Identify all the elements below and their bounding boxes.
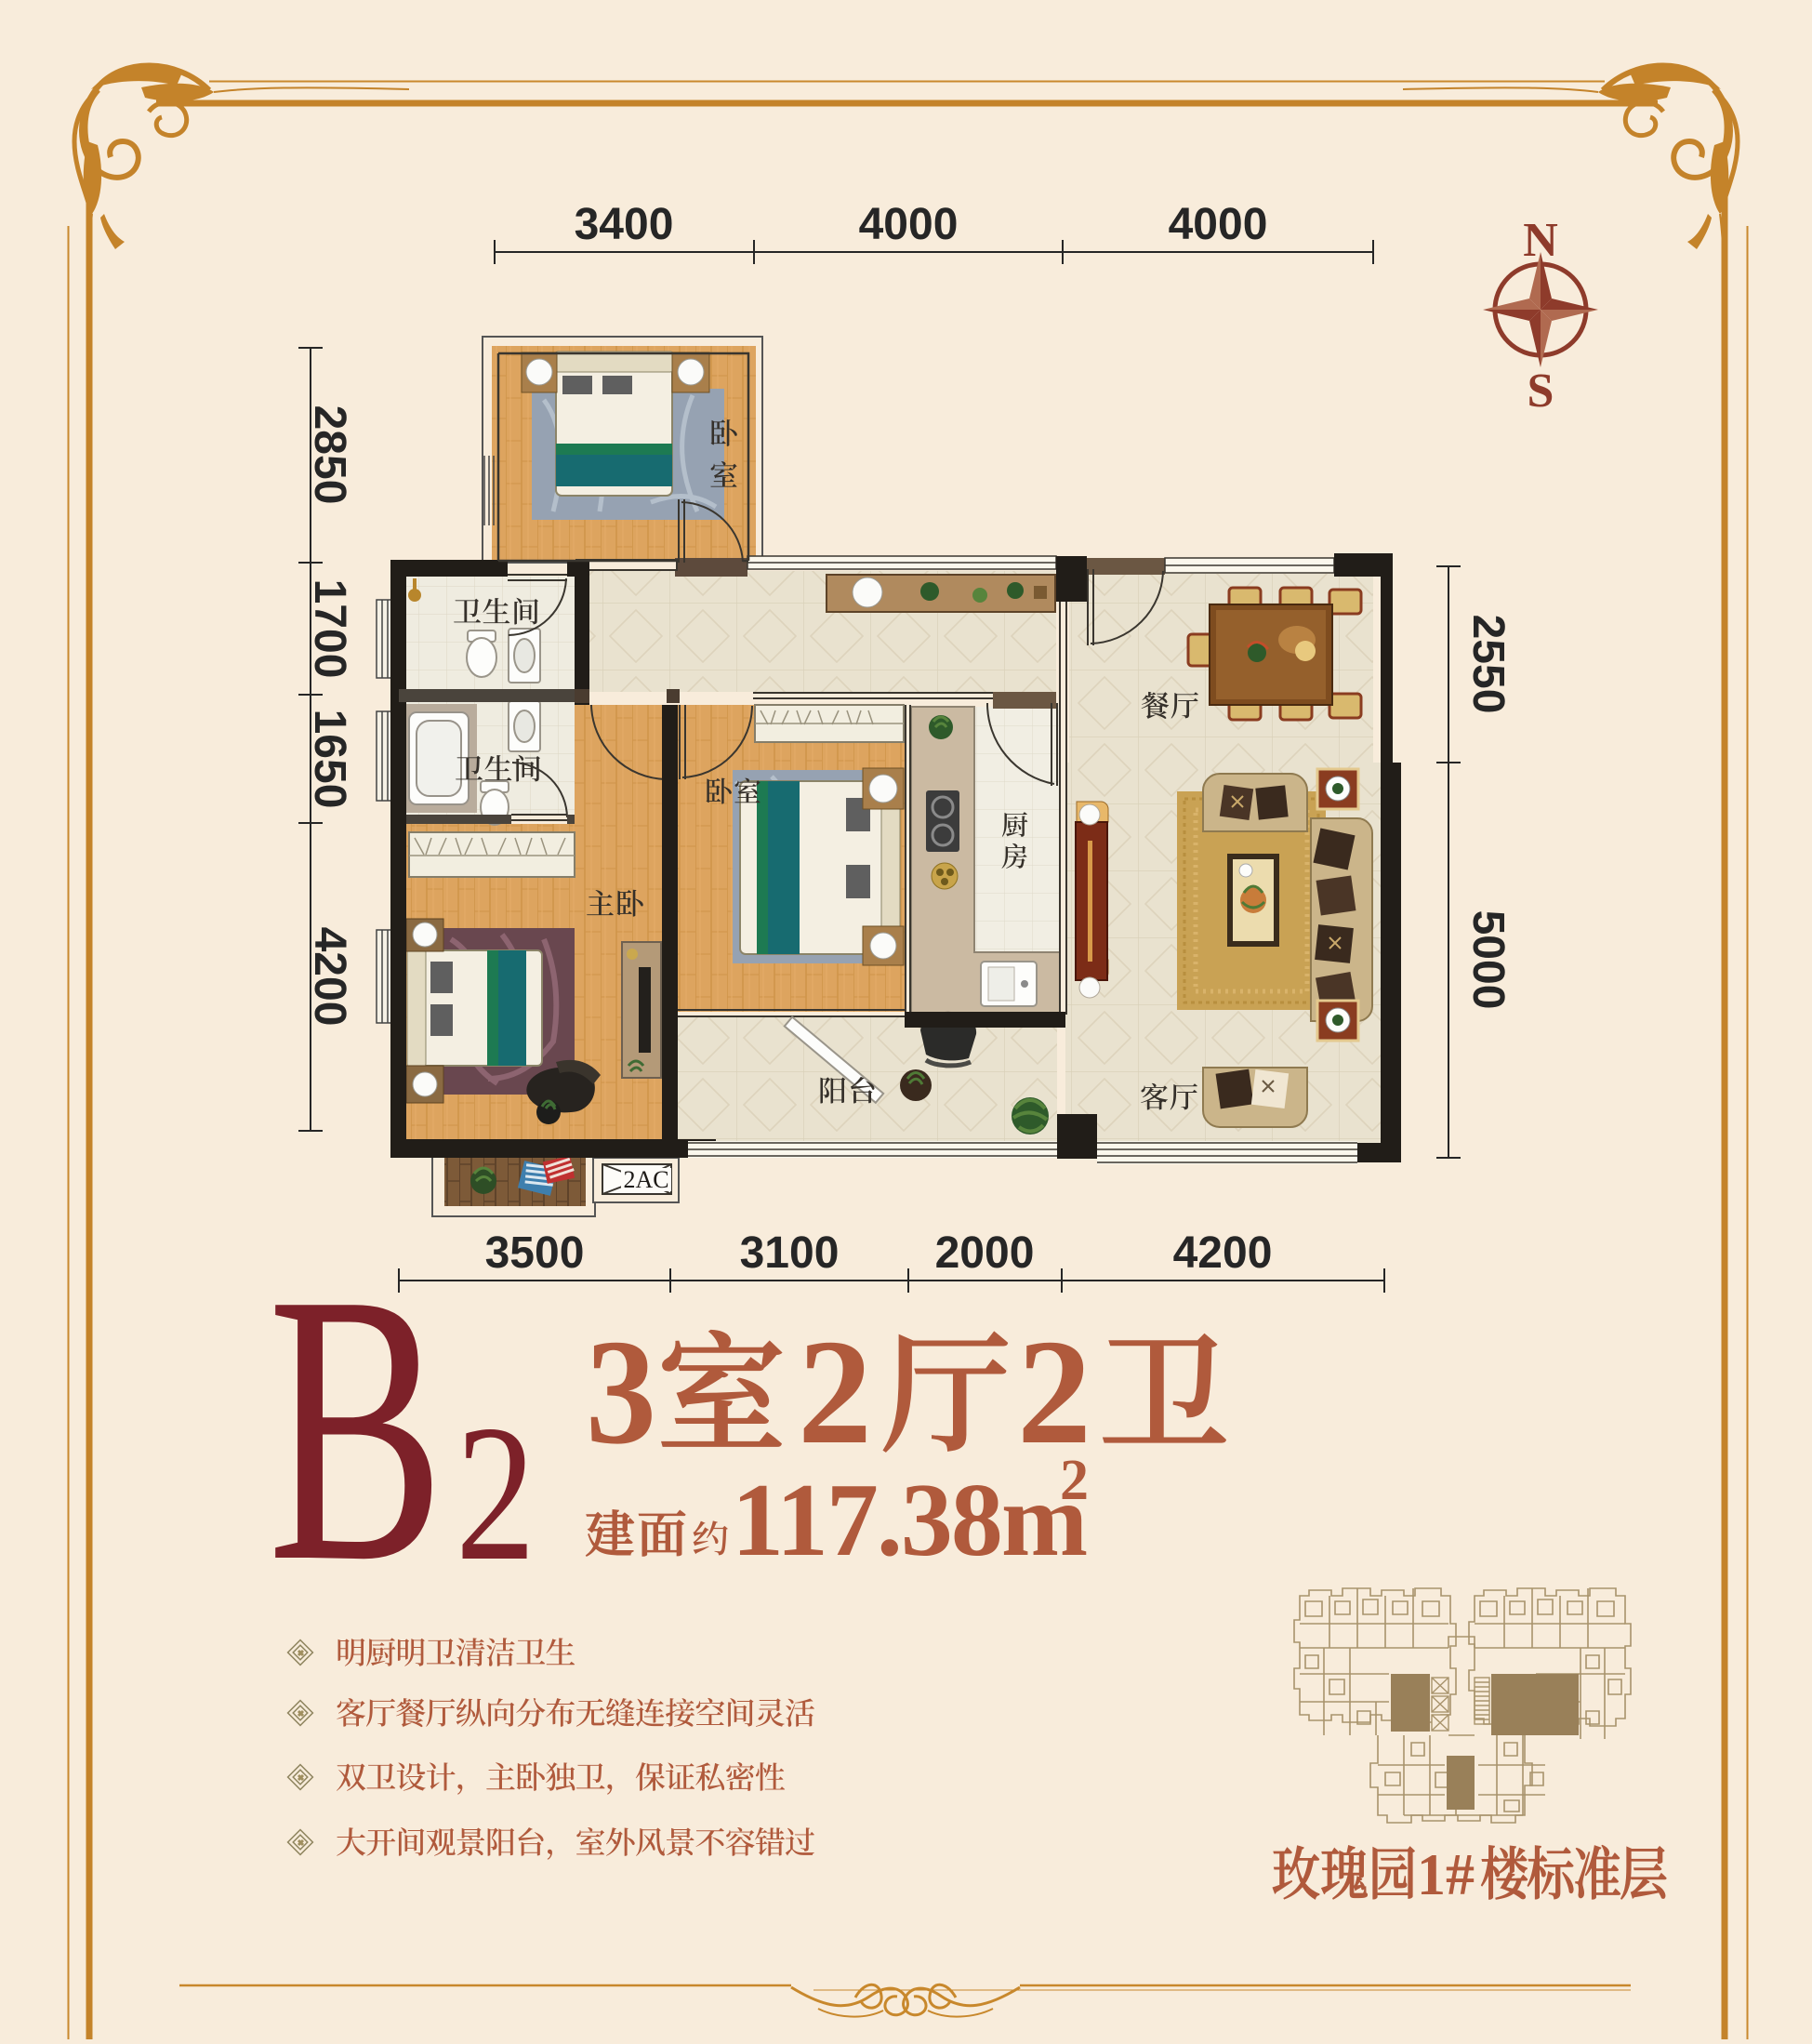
svg-text:2: 2 [1060, 1449, 1089, 1512]
svg-text:2850: 2850 [305, 405, 354, 505]
svg-text:B: B [268, 1214, 444, 1641]
svg-text:2AC: 2AC [623, 1166, 668, 1193]
svg-text:4000: 4000 [859, 200, 959, 249]
svg-text:2: 2 [798, 1309, 872, 1476]
svg-text:S: S [1528, 365, 1554, 418]
svg-text:3500: 3500 [485, 1228, 585, 1278]
svg-text:2550: 2550 [1463, 615, 1513, 714]
svg-text:5000: 5000 [1463, 910, 1513, 1010]
svg-text:3100: 3100 [740, 1228, 840, 1278]
svg-text:1700: 1700 [305, 579, 354, 679]
svg-text:3400: 3400 [575, 200, 674, 249]
svg-text:1650: 1650 [305, 710, 354, 809]
svg-text:4200: 4200 [305, 927, 354, 1027]
svg-text:2000: 2000 [935, 1228, 1035, 1278]
svg-text:1#: 1# [1417, 1841, 1475, 1907]
svg-text:2: 2 [456, 1386, 536, 1601]
svg-text:4000: 4000 [1169, 200, 1268, 249]
svg-text:4200: 4200 [1173, 1228, 1273, 1278]
svg-text:117.38m: 117.38m [732, 1463, 1087, 1578]
svg-text:3: 3 [586, 1309, 656, 1476]
